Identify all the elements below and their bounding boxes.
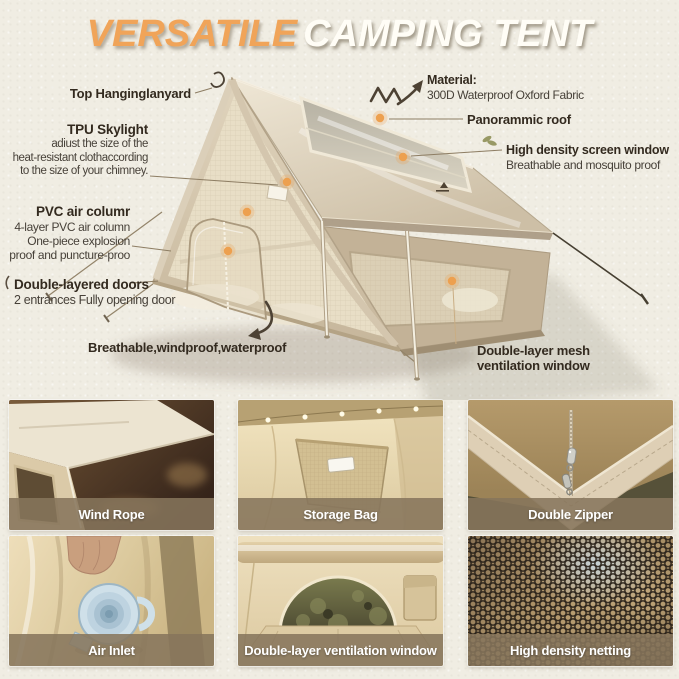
- callout-label: TPU Skylight: [13, 122, 148, 137]
- callout-description: 300D Waterproof Oxford Fabric: [427, 88, 584, 102]
- gallery-caption: Double-layer ventilation window: [244, 643, 436, 658]
- product-infographic: VERSATILECAMPING TENT Top Hanginglanyard…: [0, 0, 679, 679]
- callout-label: PVC air columr: [9, 204, 130, 219]
- gallery-caption: Double Zipper: [528, 507, 613, 522]
- callout-screen-window: High density screen window Breathable an…: [506, 143, 669, 172]
- arrow-up-right-icon: [371, 80, 423, 104]
- gallery-card-netting: High density netting: [468, 536, 673, 666]
- caption-band: Double-layer ventilation window: [238, 634, 443, 666]
- callout-material: Material: 300D Waterproof Oxford Fabric: [427, 73, 584, 102]
- callout-description: Breathable and mosquito proof: [506, 158, 669, 172]
- caption-band: Storage Bag: [238, 498, 443, 530]
- callout-description: 4-layer PVC air column One-piece explosi…: [9, 220, 130, 262]
- gallery-caption: Wind Rope: [79, 507, 145, 522]
- callout-description: adiust the size of the heat-resistant cl…: [13, 138, 148, 179]
- callout-double-layered-doors: Double-layered doors 2 entrances Fully o…: [14, 277, 175, 308]
- caption-band: Air Inlet: [9, 634, 214, 666]
- leaf-icon: [482, 135, 498, 147]
- callout-pvc-air-column: PVC air columr 4-layer PVC air column On…: [9, 204, 130, 262]
- gallery-caption: Air Inlet: [88, 643, 135, 658]
- callout-top-hanging-lanyard: Top Hanginglanyard: [70, 86, 191, 102]
- callout-tpu-skylight: TPU Skylight adiust the size of the heat…: [13, 122, 148, 179]
- gallery-card-double-zipper: Double Zipper: [468, 400, 673, 530]
- page-title: VERSATILECAMPING TENT: [0, 13, 679, 56]
- callout-label: Double-layer mesh ventilation window: [477, 344, 590, 374]
- caption-band: Double Zipper: [468, 498, 673, 530]
- callout-panoramic-roof: Panorammic roof: [467, 112, 571, 128]
- callout-label: Breathable,windproof,waterproof: [88, 340, 286, 355]
- callout-label: Material:: [427, 73, 584, 87]
- gallery-caption: High density netting: [510, 643, 631, 658]
- gallery-caption: Storage Bag: [303, 507, 377, 522]
- hanging-hook-icon: [211, 72, 224, 87]
- callout-label: High density screen window: [506, 143, 669, 157]
- gallery-card-wind-rope: Wind Rope: [9, 400, 214, 530]
- gallery-card-air-inlet: Air Inlet: [9, 536, 214, 666]
- caption-band: High density netting: [468, 634, 673, 666]
- gallery-card-storage-bag: Storage Bag: [238, 400, 443, 530]
- caption-band: Wind Rope: [9, 498, 214, 530]
- title-rest: CAMPING TENT: [303, 13, 592, 55]
- gallery-card-ventilation-window: Double-layer ventilation window: [238, 536, 443, 666]
- callout-description: 2 entrances Fully opening door: [14, 293, 175, 308]
- callout-mesh-vent-window: Double-layer mesh ventilation window: [477, 344, 590, 375]
- callout-label: Top Hanginglanyard: [70, 86, 191, 101]
- callout-breathable: Breathable,windproof,waterproof: [88, 340, 286, 356]
- title-highlight: VERSATILE: [87, 13, 297, 55]
- callout-label: Double-layered doors: [14, 277, 175, 292]
- callout-label: Panorammic roof: [467, 112, 571, 127]
